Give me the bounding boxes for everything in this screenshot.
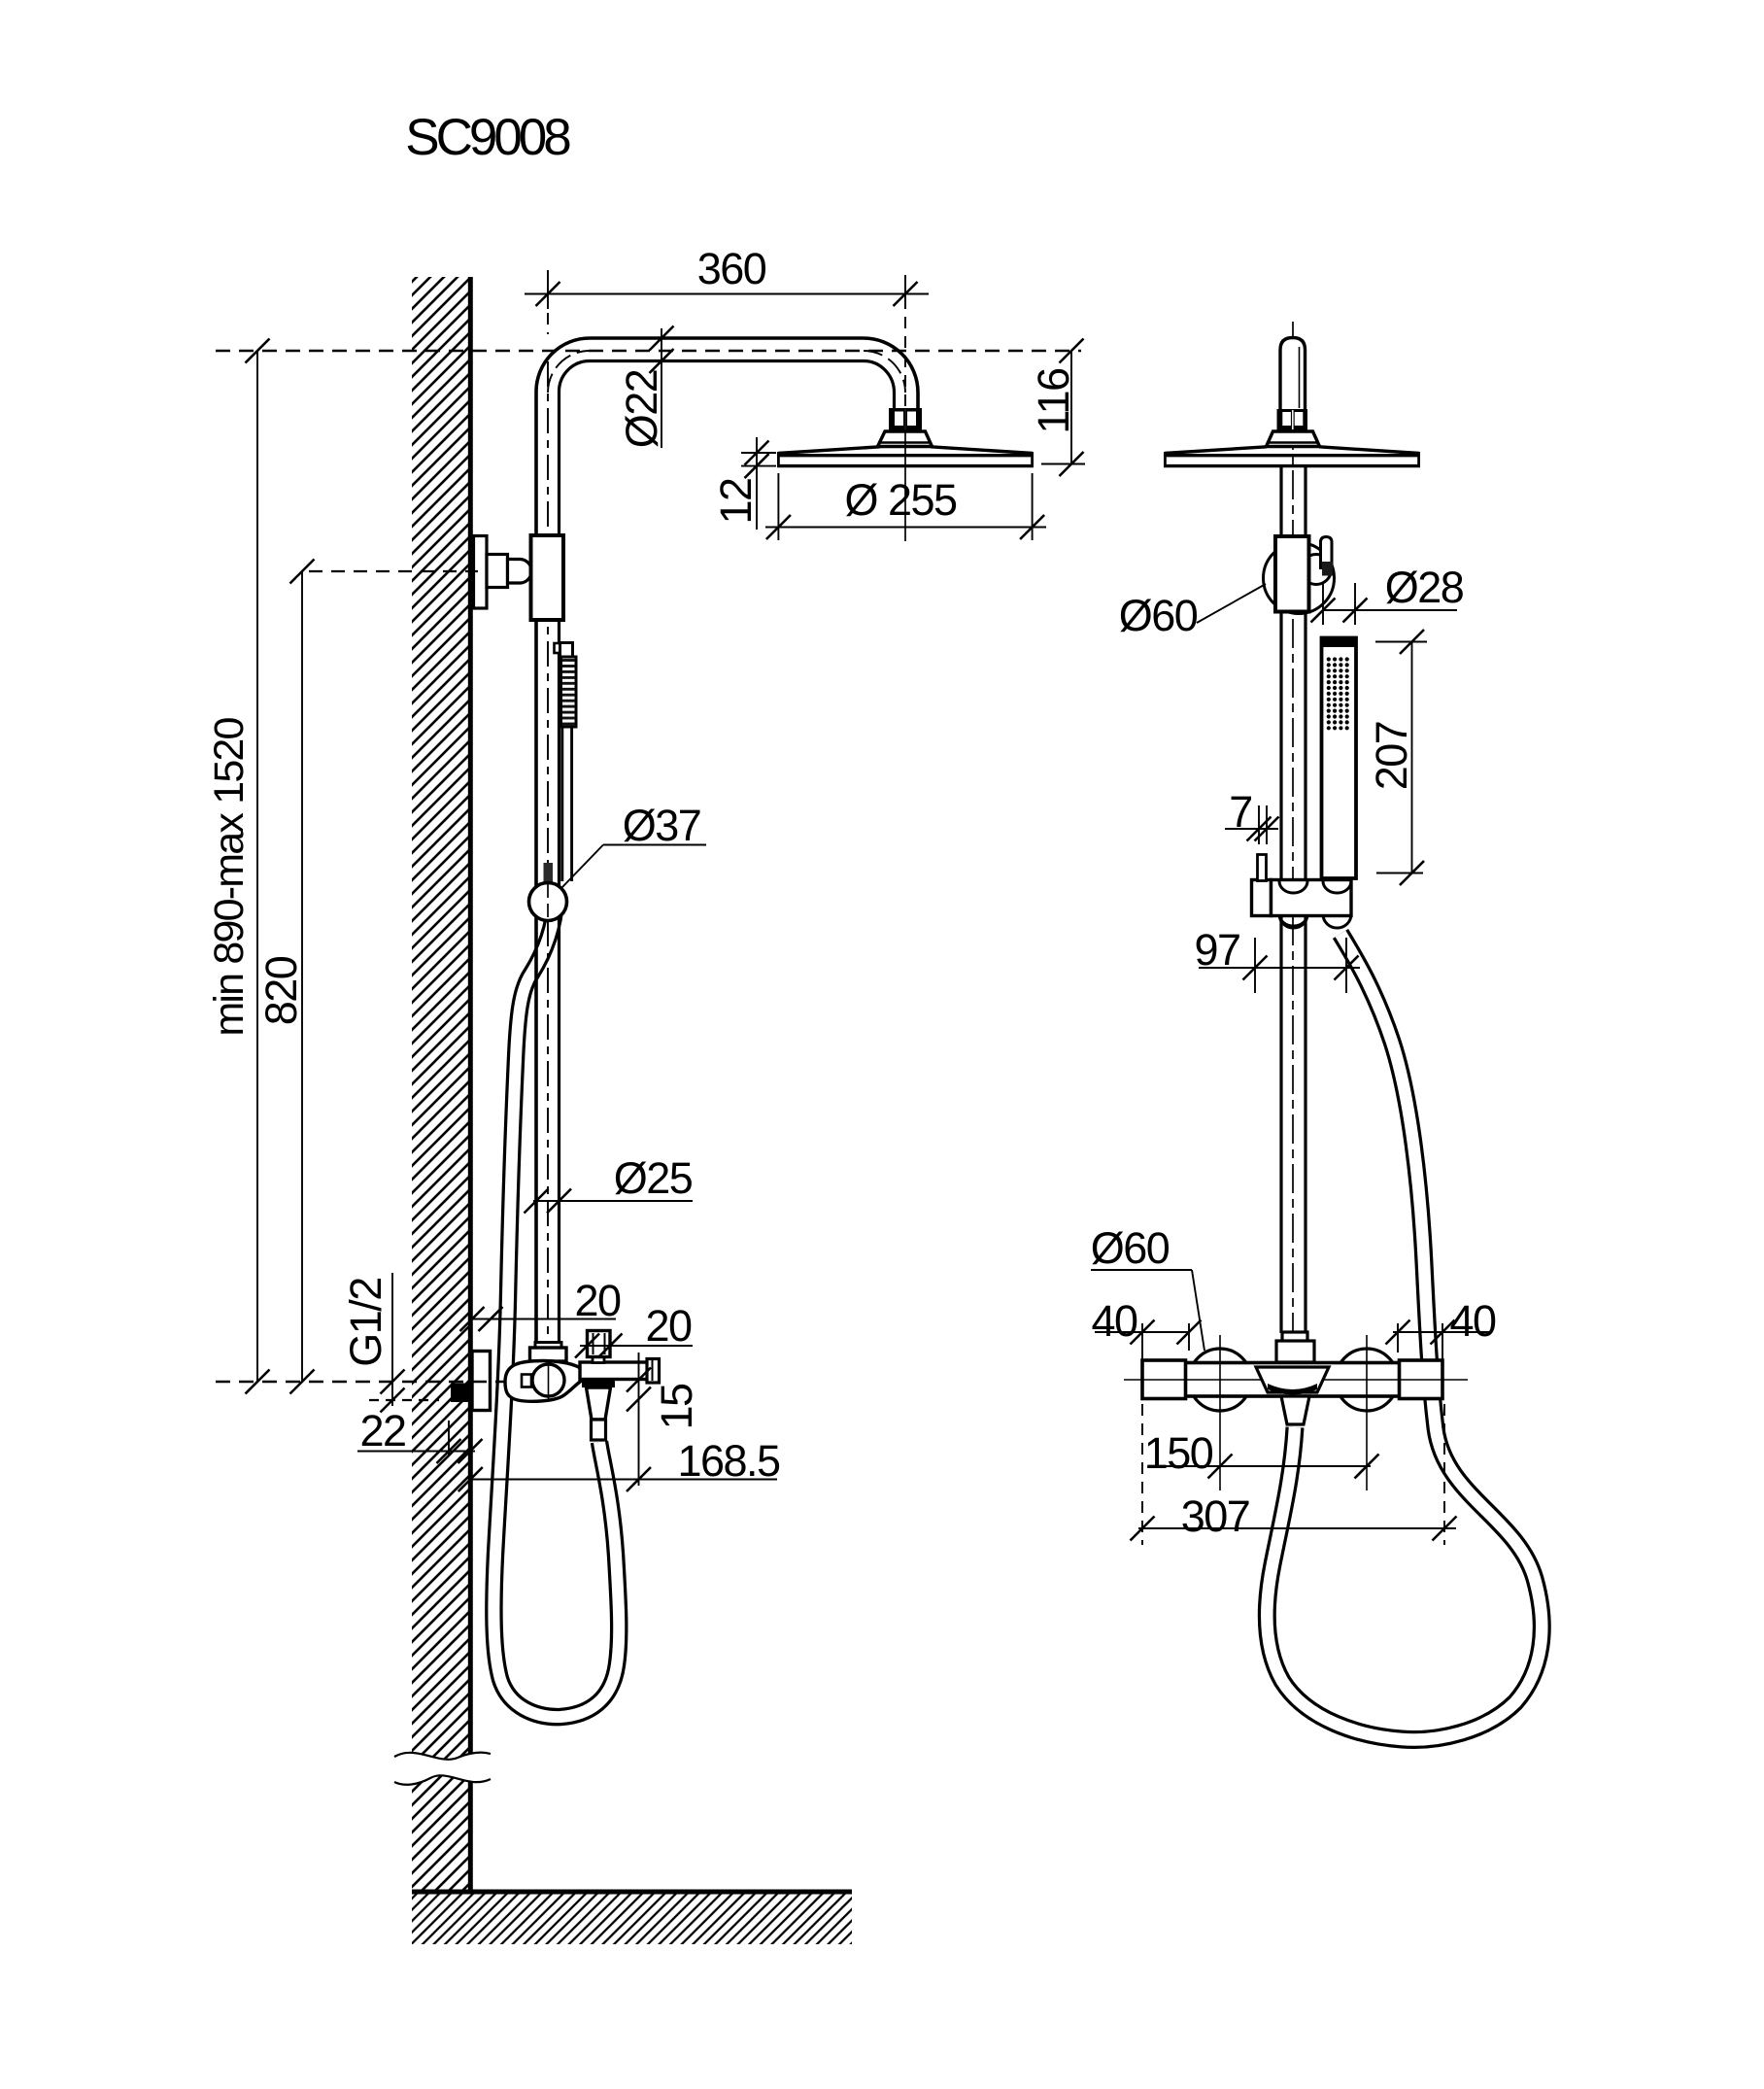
svg-text:12: 12 [711, 478, 761, 524]
svg-text:150: 150 [1144, 1428, 1213, 1478]
svg-text:97: 97 [1194, 925, 1239, 975]
svg-text:Ø22: Ø22 [617, 370, 666, 449]
svg-text:min 890-max 1520: min 890-max 1520 [206, 717, 253, 1036]
svg-text:40: 40 [1449, 1296, 1496, 1346]
svg-text:168.5: 168.5 [677, 1436, 780, 1486]
svg-text:G1/2: G1/2 [341, 1278, 390, 1367]
svg-text:7: 7 [1229, 787, 1252, 837]
svg-text:360: 360 [697, 244, 766, 293]
svg-text:207: 207 [1367, 722, 1416, 791]
svg-text:20: 20 [574, 1276, 621, 1325]
svg-text:116: 116 [1029, 368, 1078, 434]
svg-text:Ø60: Ø60 [1091, 1223, 1170, 1273]
svg-text:Ø37: Ø37 [623, 801, 701, 850]
svg-text:15: 15 [652, 1384, 701, 1430]
svg-text:22: 22 [359, 1406, 405, 1455]
svg-text:SC9008: SC9008 [405, 109, 570, 166]
svg-text:Ø25: Ø25 [614, 1153, 693, 1203]
svg-text:Ø 255: Ø 255 [844, 475, 957, 525]
svg-text:20: 20 [645, 1301, 692, 1351]
svg-text:Ø60: Ø60 [1119, 591, 1198, 640]
svg-text:307: 307 [1181, 1491, 1250, 1541]
svg-text:40: 40 [1091, 1296, 1137, 1346]
svg-text:Ø28: Ø28 [1385, 563, 1464, 612]
svg-text:820: 820 [256, 956, 306, 1025]
